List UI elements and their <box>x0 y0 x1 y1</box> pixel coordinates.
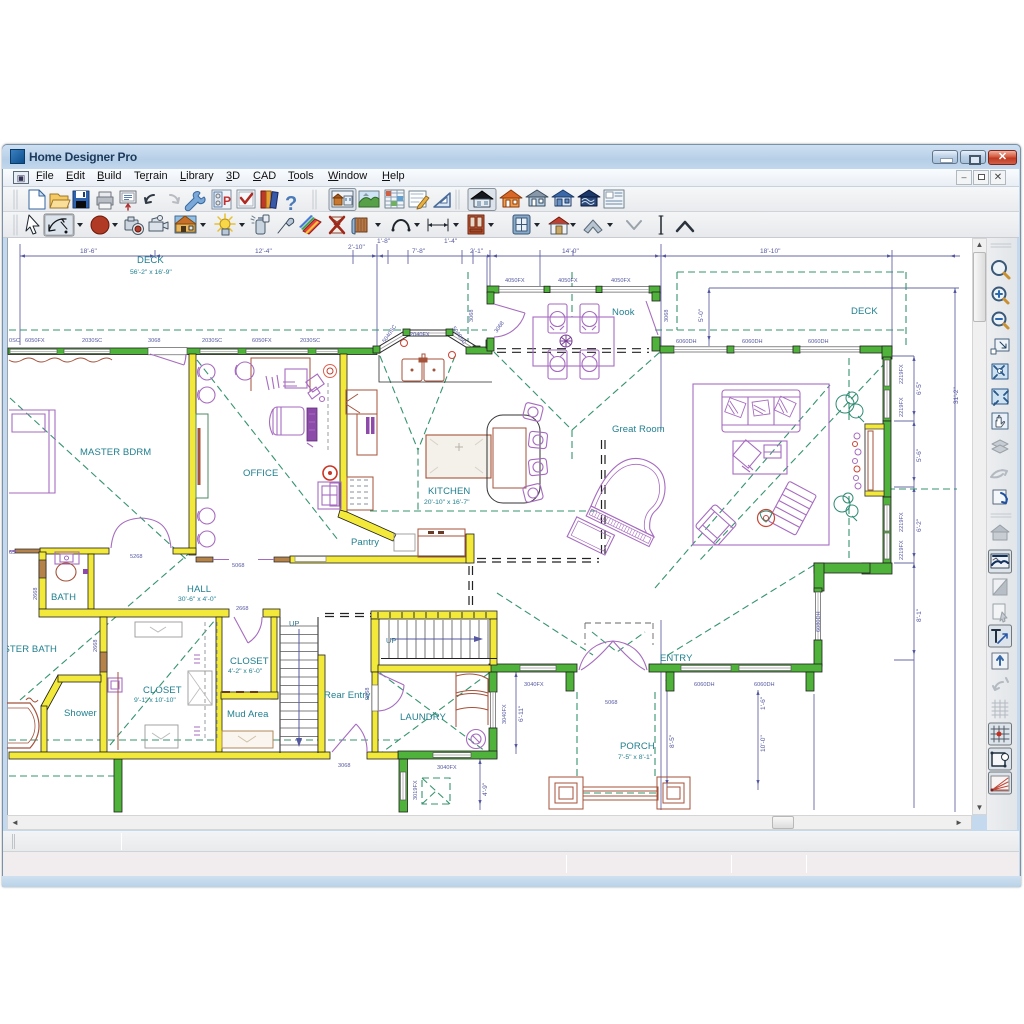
svg-text:HALL: HALL <box>187 584 211 595</box>
svg-text:2'-1": 2'-1" <box>470 248 484 255</box>
svg-text:4'-9": 4'-9" <box>482 782 489 796</box>
svg-text:4050FX: 4050FX <box>505 278 525 284</box>
svg-text:5'-6": 5'-6" <box>916 448 923 462</box>
svg-text:56'-2" x 16'-9": 56'-2" x 16'-9" <box>130 269 172 276</box>
svg-text:2668: 2668 <box>365 688 371 700</box>
svg-text:2219FX: 2219FX <box>899 364 905 384</box>
svg-text:CLOSET: CLOSET <box>230 656 269 667</box>
svg-text:8'-1": 8'-1" <box>916 608 923 622</box>
svg-text:6060DH: 6060DH <box>808 339 829 345</box>
svg-text:5'-0": 5'-0" <box>698 308 705 322</box>
svg-text:3068: 3068 <box>664 310 670 322</box>
svg-text:6050FX: 6050FX <box>252 338 272 344</box>
svg-text:6060DH: 6060DH <box>754 682 775 688</box>
svg-text:ENTRY: ENTRY <box>660 653 693 664</box>
svg-text:2219FX: 2219FX <box>899 540 905 560</box>
svg-text:1'-6": 1'-6" <box>760 696 767 710</box>
svg-text:LAUNDRY: LAUNDRY <box>400 712 446 723</box>
svg-text:0SC: 0SC <box>9 338 20 344</box>
svg-text:18'-6": 18'-6" <box>80 248 97 255</box>
svg-text:1'-8": 1'-8" <box>377 238 391 245</box>
svg-text:PORCH: PORCH <box>620 741 655 752</box>
svg-text:3040FX: 3040FX <box>437 765 457 771</box>
svg-text:31'-2": 31'-2" <box>953 387 960 404</box>
svg-text:3068: 3068 <box>148 338 160 344</box>
svg-text:7'-5" x 8'-1": 7'-5" x 8'-1" <box>618 754 653 761</box>
svg-text:Great Room: Great Room <box>612 424 665 435</box>
svg-text:2668: 2668 <box>33 588 39 600</box>
svg-text:2'-10": 2'-10" <box>348 244 365 251</box>
svg-text:UP: UP <box>289 619 299 628</box>
svg-text:MASTER BATH: MASTER BATH <box>7 644 57 655</box>
svg-text:?: ? <box>285 193 297 212</box>
svg-text:20'-10" x 16'-7": 20'-10" x 16'-7" <box>424 499 470 506</box>
svg-text:6060DH: 6060DH <box>694 682 715 688</box>
svg-text:6060DH: 6060DH <box>742 339 763 345</box>
svg-text:3040FX: 3040FX <box>502 704 508 724</box>
svg-text:10'-0": 10'-0" <box>760 735 767 752</box>
svg-text:6'-5": 6'-5" <box>916 381 923 395</box>
svg-text:Nook: Nook <box>612 307 635 318</box>
svg-text:7'-8": 7'-8" <box>412 248 426 255</box>
svg-text:DECK: DECK <box>137 255 164 266</box>
svg-text:14'-0": 14'-0" <box>562 248 579 255</box>
svg-text:Pantry: Pantry <box>351 537 379 548</box>
svg-text:UP: UP <box>386 636 396 645</box>
svg-text:30'-6" x 4'-0": 30'-6" x 4'-0" <box>178 596 217 603</box>
svg-text:4'-2" x 6'-0": 4'-2" x 6'-0" <box>228 668 263 675</box>
svg-text:4050FX: 4050FX <box>558 278 578 284</box>
svg-text:4050FX: 4050FX <box>611 278 631 284</box>
svg-text:2030SC: 2030SC <box>82 338 102 344</box>
svg-text:5068: 5068 <box>232 563 244 569</box>
svg-text:2668: 2668 <box>236 606 248 612</box>
svg-text:OFFICE: OFFICE <box>243 468 278 479</box>
svg-text:9'-1" x 10'-10": 9'-1" x 10'-10" <box>134 697 176 704</box>
svg-text:3068: 3068 <box>494 321 506 335</box>
svg-text:6050FX: 6050FX <box>25 338 45 344</box>
svg-text:18'-10": 18'-10" <box>760 248 781 255</box>
svg-text:8'-5": 8'-5" <box>669 734 676 748</box>
svg-text:Rear Entry: Rear Entry <box>324 690 371 701</box>
svg-text:MASTER BDRM: MASTER BDRM <box>80 447 151 458</box>
svg-text:5268: 5268 <box>130 554 142 560</box>
svg-text:65: 65 <box>9 550 15 556</box>
svg-text:CLOSET: CLOSET <box>143 685 182 696</box>
svg-text:Shower: Shower <box>64 708 97 719</box>
svg-text:2030SC: 2030SC <box>202 338 222 344</box>
svg-text:DECK: DECK <box>851 306 878 317</box>
svg-text:5068: 5068 <box>605 700 617 706</box>
svg-text:6080DH: 6080DH <box>816 611 822 632</box>
svg-text:6060DH: 6060DH <box>676 339 697 345</box>
svg-text:1'-4": 1'-4" <box>444 238 458 245</box>
svg-text:6'-11": 6'-11" <box>518 705 525 722</box>
svg-text:2030SC: 2030SC <box>300 338 320 344</box>
svg-text:3068: 3068 <box>469 310 475 322</box>
svg-text:KITCHEN: KITCHEN <box>428 486 470 497</box>
svg-text:BATH: BATH <box>51 592 76 603</box>
svg-text:12'-4": 12'-4" <box>255 248 272 255</box>
svg-text:2040FX: 2040FX <box>410 332 430 338</box>
svg-text:2219FX: 2219FX <box>899 397 905 417</box>
svg-text:6'-2": 6'-2" <box>916 518 923 532</box>
svg-text:2219FX: 2219FX <box>899 512 905 532</box>
svg-text:Mud Area: Mud Area <box>227 709 269 720</box>
svg-text:3068: 3068 <box>338 763 350 769</box>
svg-text:3040FX: 3040FX <box>524 682 544 688</box>
svg-text:P: P <box>223 194 231 208</box>
svg-text:2668: 2668 <box>93 640 99 652</box>
svg-text:3019FX: 3019FX <box>413 780 419 800</box>
